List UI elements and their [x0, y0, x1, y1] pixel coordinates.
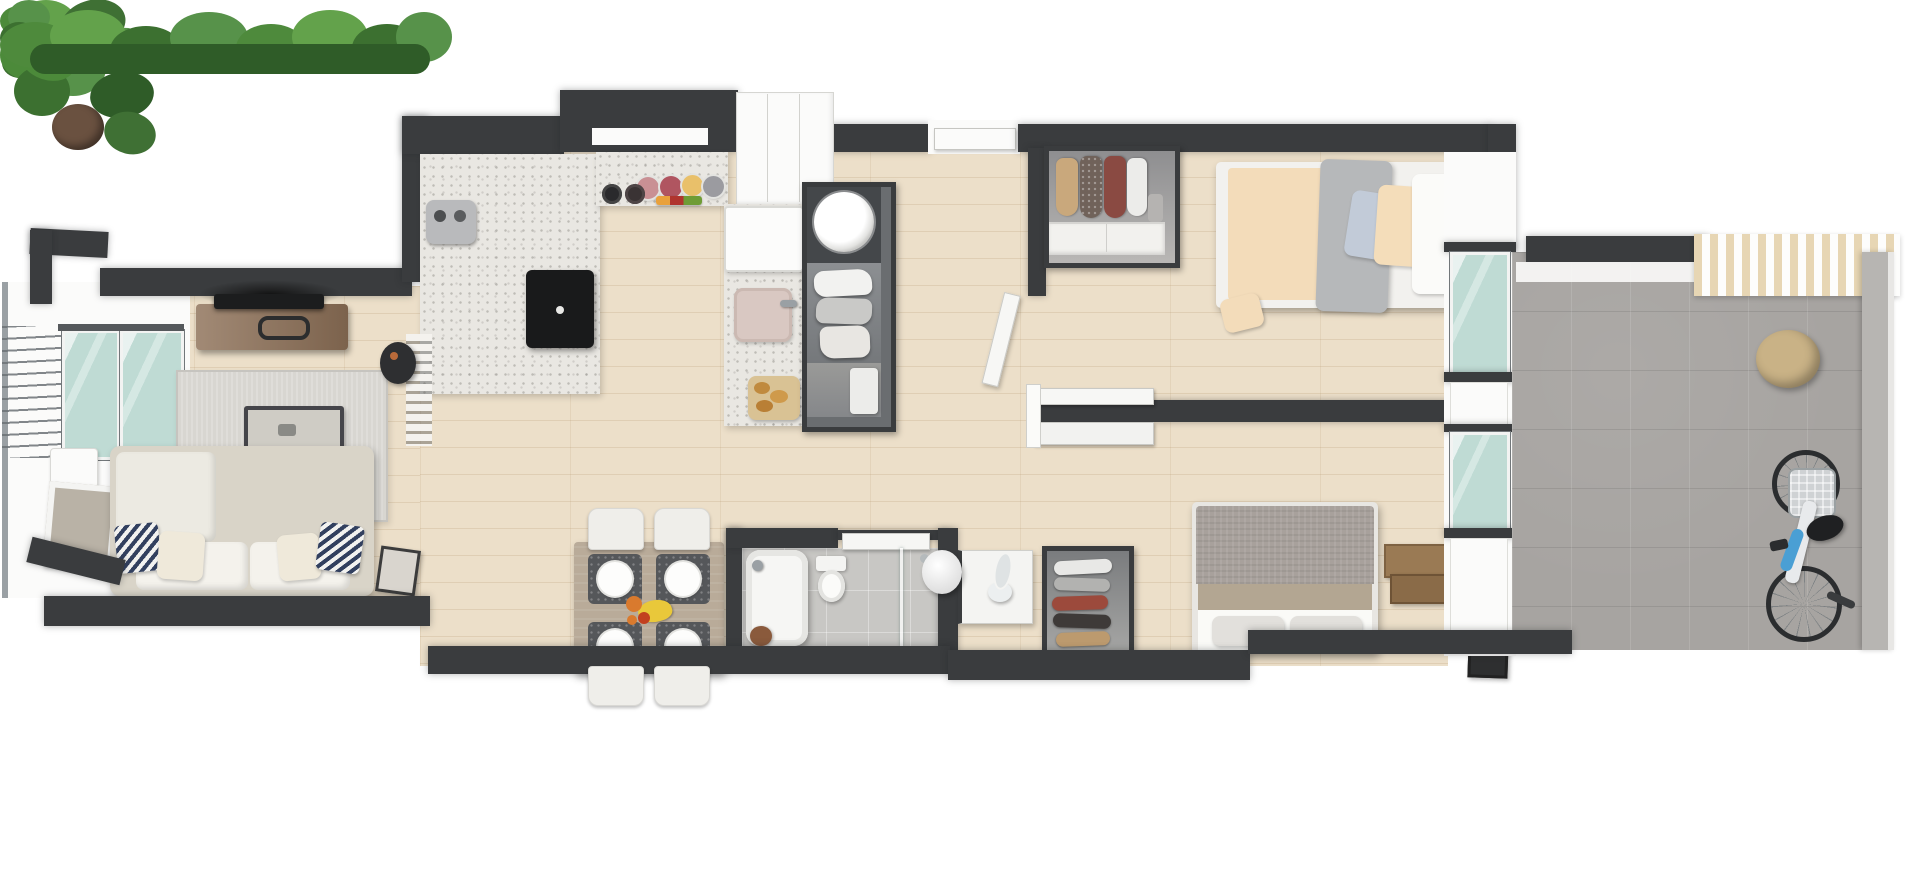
front-door-leaf	[934, 128, 1016, 150]
garment-dark	[1080, 156, 1102, 218]
entry-cabinet-seam2	[799, 94, 800, 202]
master-bed-gray-cover	[1196, 506, 1374, 584]
wood-crates-nightstand	[1384, 544, 1450, 578]
wood-crates-lower	[1390, 574, 1450, 604]
cooktop-dot	[556, 306, 564, 314]
kitchen-sink	[734, 288, 792, 342]
terrace-right-wall	[1862, 252, 1894, 650]
entry-cabinet-seam	[767, 94, 768, 202]
toilet-bowl	[818, 570, 845, 602]
serving-plate-gray	[703, 176, 724, 197]
hanging-clothes-white	[813, 269, 872, 298]
serving-plate-yellow	[682, 175, 703, 196]
glass-frame-bottom	[1444, 528, 1516, 538]
wall-bottom-bedroom	[948, 650, 1250, 680]
espresso-machine	[426, 200, 476, 244]
dining-plate-1	[598, 562, 632, 596]
kitchen-window-slot	[592, 128, 708, 145]
wall-between-doors	[1450, 382, 1508, 426]
garment-tan	[1056, 158, 1078, 216]
wall-bottom-living	[44, 596, 430, 626]
espresso-knob-2	[454, 210, 466, 222]
glass-frame-mid1	[1444, 372, 1516, 382]
croissant-1	[754, 382, 770, 394]
books-stack	[375, 545, 421, 596]
wardrobe-base-seam	[1106, 224, 1107, 252]
sink-faucet	[780, 300, 797, 307]
wall-bathroom-right	[938, 528, 958, 660]
washing-machine	[814, 192, 874, 252]
terrace-top-strip	[1516, 262, 1706, 282]
hanging-clothes-cream	[819, 325, 870, 359]
bathroom-sliding-door	[842, 533, 930, 550]
laundry-white-item	[850, 368, 878, 414]
dining-chair-bottom-left	[588, 666, 644, 706]
jug-lamp	[922, 550, 962, 594]
wall-left-upper	[30, 230, 52, 304]
fruit-tray	[656, 196, 702, 205]
wardrobe-base-cabinets	[1049, 222, 1165, 255]
bathtub-faucet	[752, 560, 763, 571]
console-handle	[258, 316, 310, 340]
cream-pillow-left	[156, 530, 205, 581]
shower-glass-panel	[900, 548, 903, 646]
wall-bottom-terrace	[1248, 630, 1572, 654]
floor-plan	[0, 0, 1920, 882]
master-bed-tan-strip	[1198, 584, 1372, 610]
dining-chair-top-right	[654, 508, 710, 550]
wine-bottle-glint	[390, 352, 398, 360]
dining-plate-2	[666, 562, 700, 596]
garment-maroon	[1104, 156, 1126, 218]
dining-chair-bottom-right	[654, 666, 710, 706]
croissant-3	[756, 400, 773, 412]
croissant-2	[770, 390, 788, 403]
coffee-table-decor	[278, 424, 296, 436]
bowl-dark-1	[602, 184, 622, 204]
garment-pile	[1148, 194, 1163, 222]
master-terrace-door	[1450, 432, 1510, 534]
fruit-oranges	[626, 596, 642, 612]
zigzag-pillow-right	[315, 521, 365, 575]
sliding-panel-endcap	[1026, 384, 1041, 448]
shoes-tan	[1056, 631, 1110, 647]
fridge-top	[724, 206, 804, 272]
bike-rear-wheel	[1766, 566, 1842, 642]
balcony-glass-door-right	[120, 330, 184, 460]
wall-terrace-top	[1526, 236, 1708, 262]
espresso-knob-1	[434, 210, 446, 222]
wall-kitchen-top	[402, 116, 564, 154]
wine-stool	[380, 342, 416, 384]
balcony-glass-door-left	[62, 330, 120, 460]
tv	[214, 294, 324, 309]
hanging-clothes-gray	[816, 297, 873, 325]
dining-chair-top-left	[588, 508, 644, 550]
glass-frame-mid2	[1444, 424, 1516, 432]
balcony-door-frame	[58, 324, 184, 331]
serving-plate-red	[660, 176, 682, 198]
wall-entry-right	[830, 124, 930, 152]
terrace-plant-pot	[1756, 330, 1820, 388]
toilet-tank	[816, 556, 846, 571]
sliding-panel-lower	[1034, 422, 1154, 445]
bowl-dark-2	[625, 184, 645, 204]
cream-pillow-right	[276, 532, 322, 581]
glass-frame-top	[1444, 242, 1516, 252]
shoes-red	[1052, 595, 1108, 611]
shoes-dark	[1053, 613, 1111, 629]
sliding-panel-upper	[1034, 388, 1154, 405]
bedroom2-terrace-door	[1450, 252, 1510, 376]
shoes-gray	[1054, 577, 1110, 592]
bath-stool	[750, 626, 772, 646]
wall-bathroom-top	[726, 528, 838, 548]
garment-white	[1127, 158, 1147, 216]
